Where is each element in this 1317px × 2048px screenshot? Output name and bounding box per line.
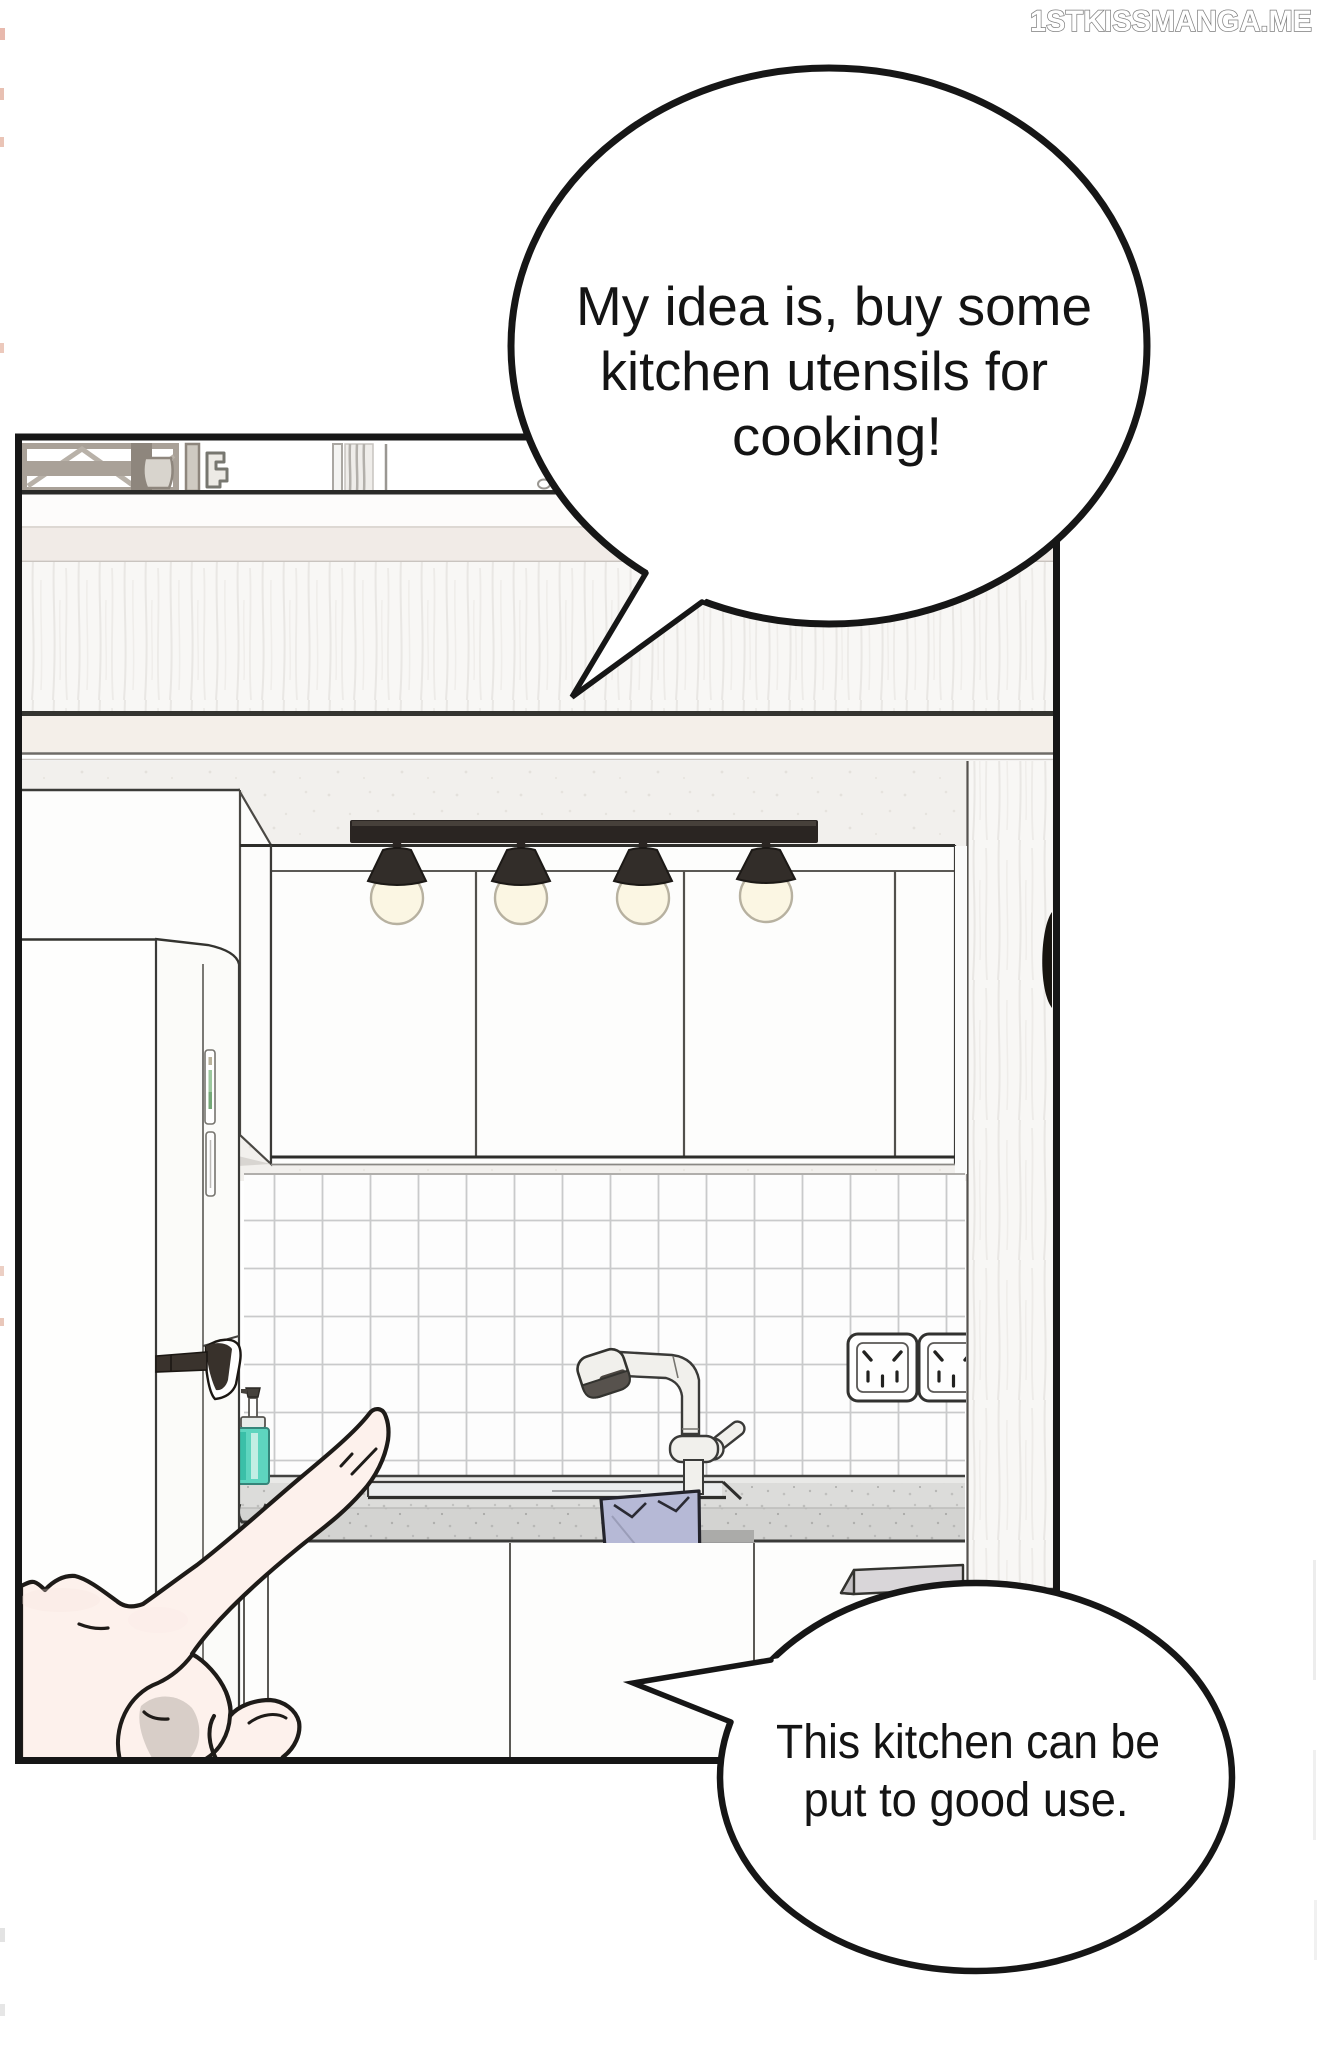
svg-text:This kitchen can be: This kitchen can be (776, 1716, 1160, 1769)
svg-text:cooking!: cooking! (732, 405, 942, 467)
svg-text:1STKISSMANGA.ME: 1STKISSMANGA.ME (1030, 5, 1312, 38)
svg-text:kitchen utensils for: kitchen utensils for (600, 340, 1048, 402)
svg-text:put to good use.: put to good use. (804, 1774, 1129, 1827)
svg-text:My idea is, buy some: My idea is, buy some (576, 275, 1092, 337)
